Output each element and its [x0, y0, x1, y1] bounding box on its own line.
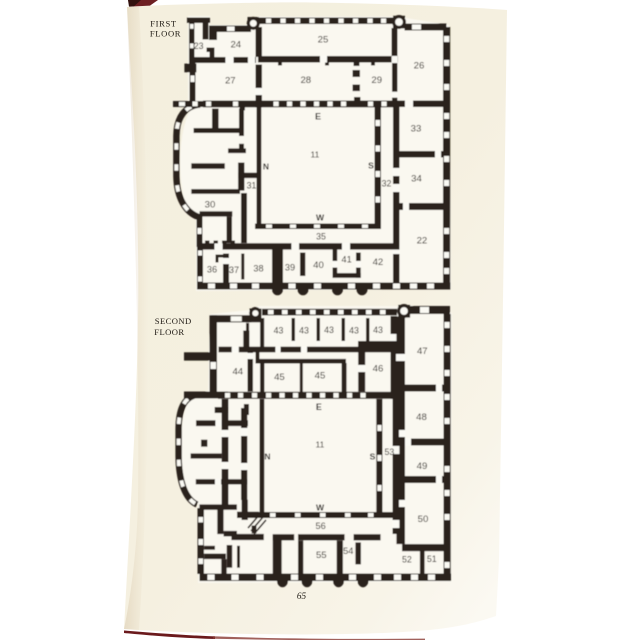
svg-text:25: 25: [318, 35, 329, 46]
svg-text:23: 23: [194, 41, 204, 51]
svg-text:48: 48: [416, 412, 427, 423]
svg-text:E: E: [315, 112, 321, 122]
svg-text:65: 65: [297, 591, 307, 601]
svg-text:22: 22: [417, 236, 428, 247]
svg-text:N: N: [264, 452, 270, 462]
svg-text:FLOOR: FLOOR: [150, 29, 181, 39]
svg-text:43: 43: [349, 326, 359, 336]
svg-text:11: 11: [311, 150, 320, 160]
svg-text:50: 50: [418, 514, 429, 525]
svg-text:29: 29: [371, 75, 382, 86]
svg-text:44: 44: [232, 367, 243, 378]
svg-text:47: 47: [417, 346, 428, 357]
svg-text:54: 54: [343, 546, 353, 556]
svg-text:N: N: [263, 162, 269, 172]
svg-text:36: 36: [207, 265, 217, 275]
svg-text:24: 24: [230, 39, 241, 50]
svg-text:32: 32: [382, 179, 392, 189]
svg-text:FIRST: FIRST: [150, 19, 177, 29]
svg-text:W: W: [316, 213, 325, 223]
svg-text:31: 31: [247, 181, 257, 191]
svg-text:S: S: [368, 161, 374, 171]
svg-text:37: 37: [229, 265, 239, 275]
svg-text:43: 43: [324, 325, 334, 335]
svg-text:W: W: [316, 503, 325, 513]
svg-text:E: E: [316, 402, 322, 412]
svg-text:35: 35: [316, 231, 326, 241]
svg-text:41: 41: [341, 255, 351, 265]
svg-text:55: 55: [316, 550, 327, 561]
svg-text:FLOOR: FLOOR: [154, 327, 184, 337]
svg-text:43: 43: [373, 325, 383, 335]
svg-text:39: 39: [285, 263, 295, 273]
svg-text:34: 34: [411, 174, 422, 185]
svg-text:40: 40: [313, 260, 324, 271]
svg-text:56: 56: [315, 521, 325, 531]
svg-text:33: 33: [411, 124, 422, 135]
svg-text:38: 38: [253, 264, 263, 274]
svg-text:49: 49: [417, 461, 428, 472]
svg-text:46: 46: [373, 364, 384, 375]
svg-text:43: 43: [299, 326, 309, 336]
svg-text:43: 43: [274, 326, 284, 336]
svg-text:27: 27: [225, 76, 236, 87]
svg-text:11: 11: [316, 440, 325, 450]
svg-text:S: S: [370, 452, 376, 462]
svg-text:42: 42: [373, 257, 384, 268]
svg-text:45: 45: [315, 371, 326, 382]
svg-text:30: 30: [205, 200, 216, 211]
svg-text:26: 26: [414, 60, 425, 71]
svg-text:SECOND: SECOND: [155, 316, 192, 326]
svg-text:53: 53: [385, 447, 395, 457]
svg-text:45: 45: [274, 372, 285, 383]
svg-text:28: 28: [300, 75, 311, 86]
svg-text:51: 51: [427, 554, 437, 564]
svg-text:52: 52: [402, 555, 412, 565]
